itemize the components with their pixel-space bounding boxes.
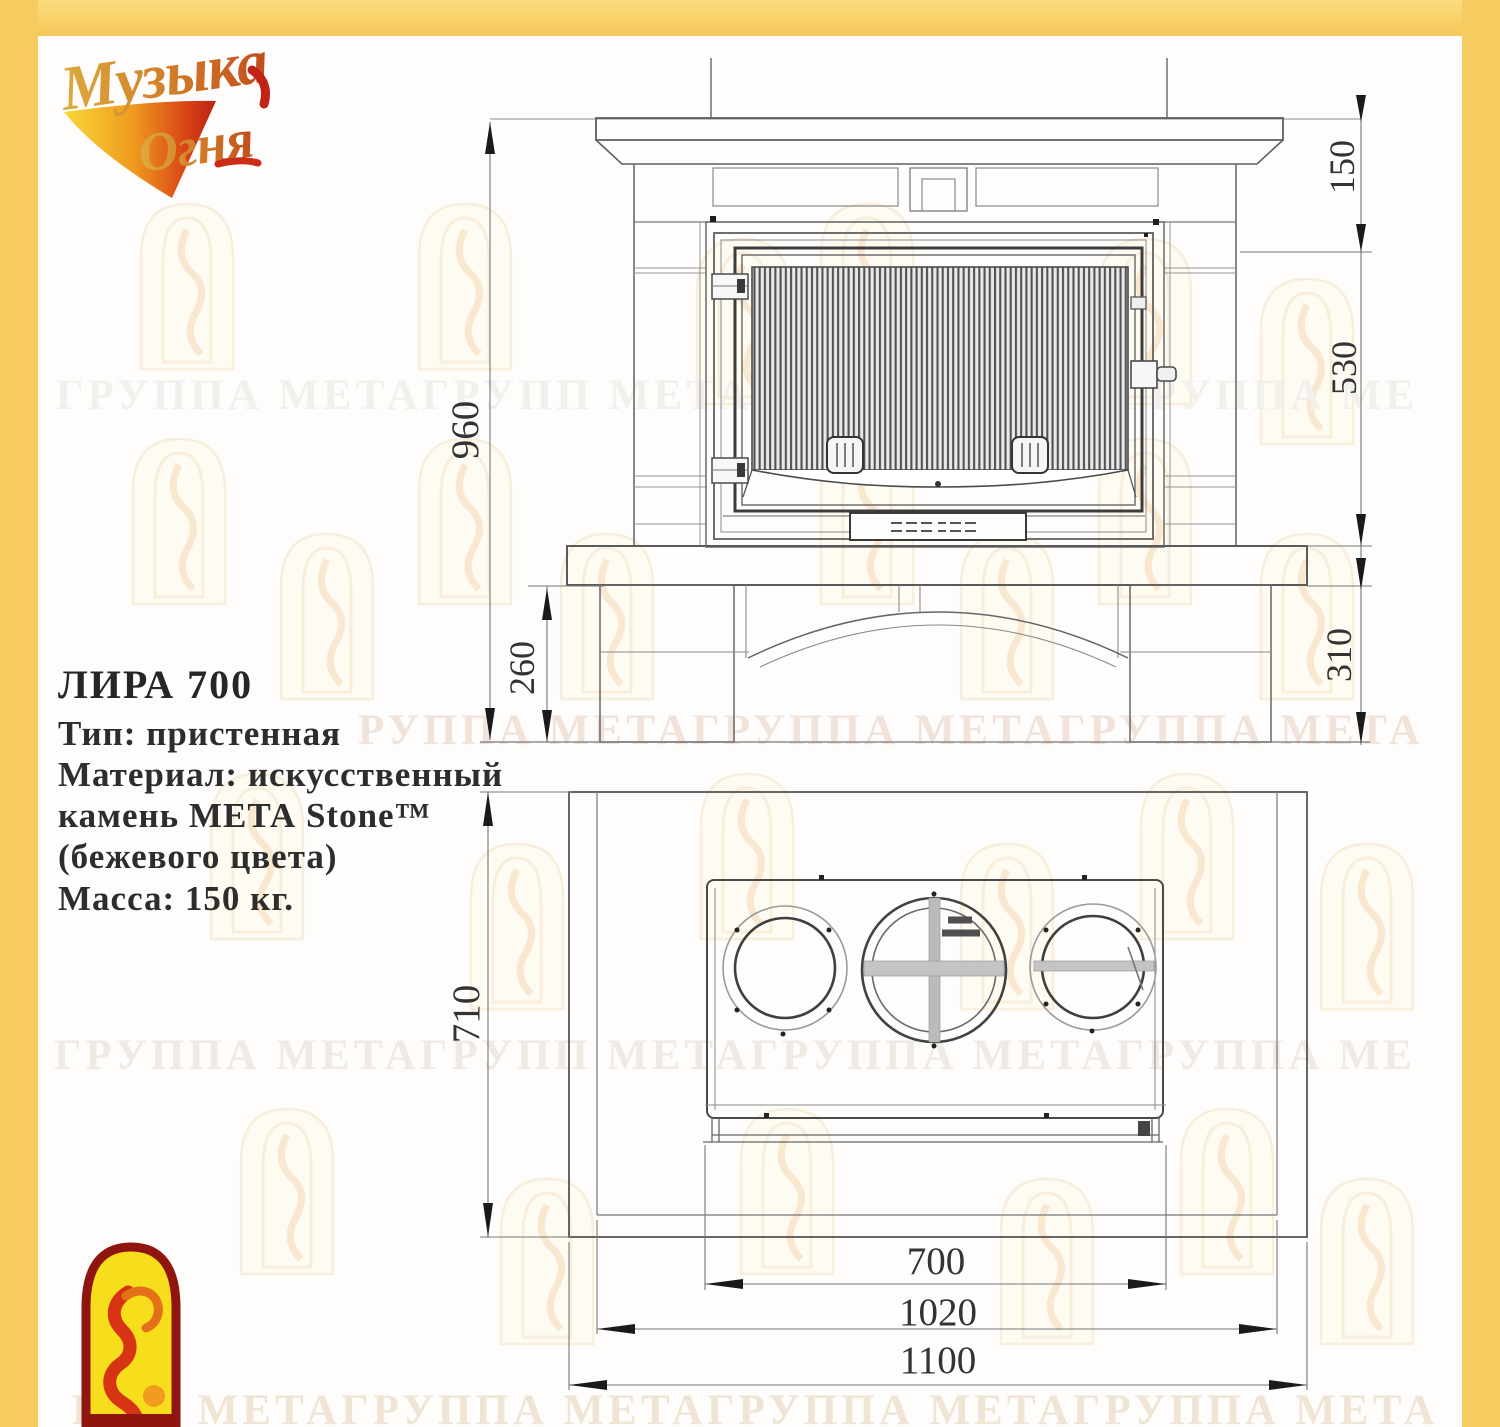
svg-text:260: 260 [502,641,542,695]
svg-text:150: 150 [1322,140,1362,194]
svg-text:Материал: искусственный: Материал: искусственный [58,755,503,794]
svg-text:700: 700 [907,1240,966,1283]
svg-text:Масса: 150 кг.: Масса: 150 кг. [58,879,294,918]
svg-text:ННА МЕТАГРУППА МЕТАГРУППА МЕТА: ННА МЕТАГРУППА МЕТАГРУППА МЕТАГРУППА МЕТ… [72,1387,1439,1427]
svg-text:1020: 1020 [899,1291,977,1334]
svg-text:ГРУППА МЕТАГРУПП МЕТАГРУППА М: ГРУППА МЕТАГРУПП МЕТАГРУППА МЕТАГРУППА М… [56,372,1418,419]
svg-text:710: 710 [445,985,488,1044]
svg-text:ГРУППА МЕТАГРУПП МЕТАГРУППА М: ГРУППА МЕТАГРУПП МЕТАГРУППА МЕТАГРУППА М… [54,1032,1416,1079]
svg-text:960: 960 [444,401,487,460]
svg-text:(бежевого цвета): (бежевого цвета) [58,837,338,876]
svg-text:РУППА МЕТАГРУППА МЕТАГРУППА МЕ: РУППА МЕТАГРУППА МЕТАГРУППА МЕТА [358,707,1424,754]
svg-text:310: 310 [1319,628,1359,682]
svg-text:ЛИРА 700: ЛИРА 700 [58,662,253,707]
svg-text:Тип: пристенная: Тип: пристенная [58,714,341,753]
svg-text:камень МЕТА Stone™: камень МЕТА Stone™ [58,796,431,835]
svg-text:530: 530 [1324,341,1364,395]
svg-text:1100: 1100 [900,1339,977,1382]
